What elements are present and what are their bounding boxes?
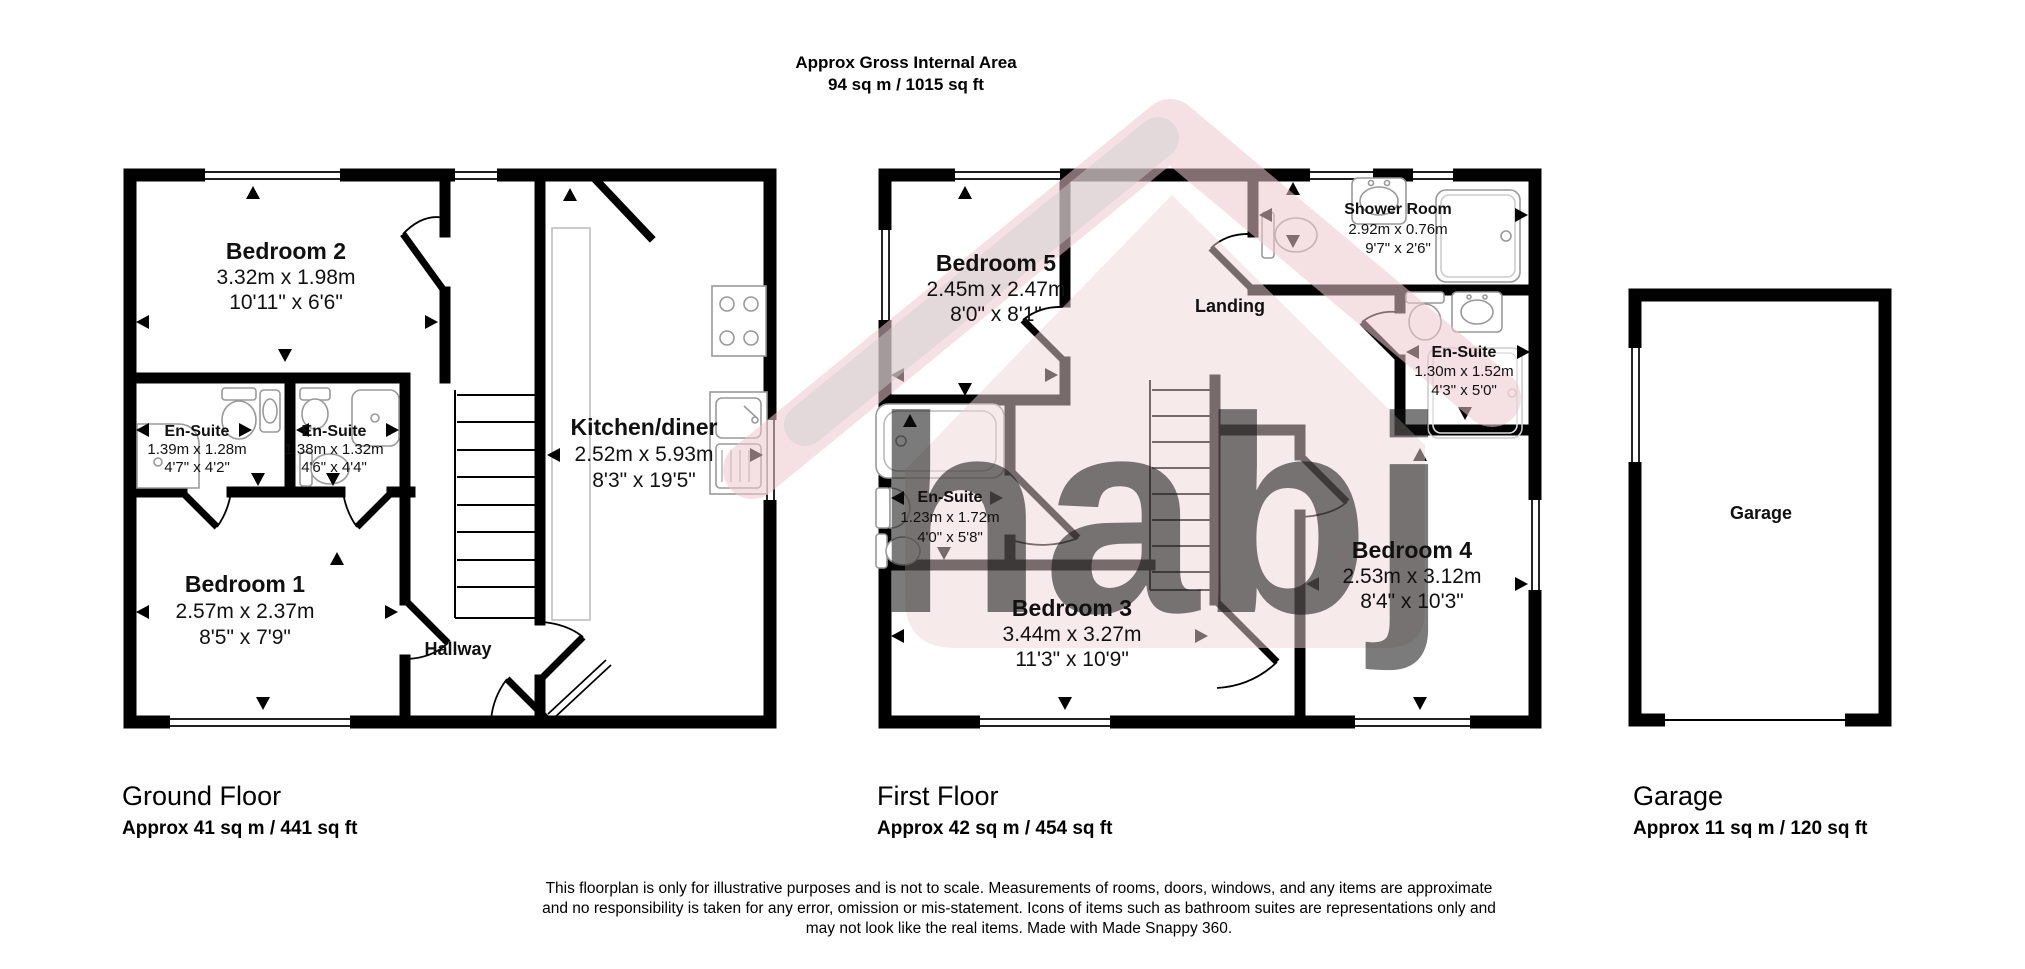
bedroom5-metric: 2.45m x 2.47m	[927, 278, 1066, 301]
garage-room-label: Garage	[1730, 503, 1792, 523]
ensuite-gf1-metric: 1.39m x 1.28m	[147, 441, 246, 458]
first-floor-title-block: First Floor Approx 42 sq m / 454 sq ft	[877, 781, 1112, 840]
ensuite-gf2-imperial: 4'6" x 4'4"	[301, 459, 367, 476]
ensuite-ff-mid-metric: 1.23m x 1.72m	[900, 509, 999, 526]
first-floor-title: First Floor	[877, 781, 1112, 811]
ground-floor-title: Ground Floor	[122, 781, 357, 811]
shower-room-metric: 2.92m x 0.76m	[1348, 221, 1447, 238]
bedroom4-metric: 2.53m x 3.12m	[1343, 565, 1482, 588]
ensuite-ff-mid-imperial: 4'0" x 5'8"	[917, 529, 983, 546]
entry-diagonal-wall	[597, 181, 650, 237]
shower-room-imperial: 9'7" x 2'6"	[1365, 240, 1431, 257]
garage-door	[1665, 714, 1845, 727]
disclaimer: This floorplan is only for illustrative …	[542, 879, 1496, 939]
disclaimer-line: may not look like the real items. Made w…	[542, 919, 1496, 939]
shower-room-label: Shower Room	[1344, 201, 1452, 218]
first-floor-area: Approx 42 sq m / 454 sq ft	[877, 818, 1112, 840]
garage-area: Approx 11 sq m / 120 sq ft	[1633, 818, 1867, 840]
stairs	[455, 390, 540, 618]
sink-icon	[260, 390, 280, 432]
ensuite-gf1-label: En-Suite	[165, 423, 230, 440]
ensuite-ff-right-label: En-Suite	[1432, 344, 1497, 361]
ensuite-gf2-metric: 1.38m x 1.32m	[284, 441, 383, 458]
bedroom3-imperial: 11'3" x 10'9"	[1015, 648, 1129, 671]
landing-label: Landing	[1195, 296, 1265, 316]
bedroom1-label: Bedroom 1	[185, 571, 305, 597]
bedroom3-label: Bedroom 3	[1012, 595, 1132, 621]
ground-floor-area: Approx 41 sq m / 441 sq ft	[122, 818, 357, 840]
bedroom2-metric: 3.32m x 1.98m	[217, 266, 356, 289]
disclaimer-line: and no responsibility is taken for any e…	[542, 899, 1496, 919]
hob-icon	[712, 286, 766, 356]
bedroom4-imperial: 8'4" x 10'3"	[1360, 590, 1464, 613]
floorplan-page: Approx Gross Internal Area 94 sq m / 101…	[0, 0, 2025, 969]
bedroom2-imperial: 10'11" x 6'6"	[229, 291, 343, 314]
disclaimer-line: This floorplan is only for illustrative …	[542, 879, 1496, 899]
garage-title: Garage	[1633, 781, 1867, 811]
bedroom4-label: Bedroom 4	[1352, 537, 1472, 563]
sink-icon	[1452, 292, 1502, 332]
kitchen-metric: 2.52m x 5.93m	[575, 443, 714, 466]
hallway-label: Hallway	[424, 639, 491, 659]
ensuite-ff-mid-label: En-Suite	[918, 489, 983, 506]
ensuite-gf2-label: En-Suite	[302, 423, 367, 440]
ensuite-gf1-imperial: 4'7" x 4'2"	[164, 459, 230, 476]
ensuite-ff-right-metric: 1.30m x 1.52m	[1414, 363, 1513, 380]
ensuite-ff-right-imperial: 4'3" x 5'0"	[1431, 382, 1497, 399]
kitchen-label: Kitchen/diner	[571, 414, 718, 440]
bedroom1-metric: 2.57m x 2.37m	[176, 600, 315, 623]
bedroom1-imperial: 8'5" x 7'9"	[199, 626, 291, 649]
bedroom2-label: Bedroom 2	[226, 238, 346, 264]
kitchen-imperial: 8'3" x 19'5"	[592, 469, 696, 492]
garage-title-block: Garage Approx 11 sq m / 120 sq ft	[1633, 781, 1867, 840]
ground-floor-title-block: Ground Floor Approx 41 sq m / 441 sq ft	[122, 781, 357, 840]
bedroom5-imperial: 8'0" x 8'1"	[950, 303, 1042, 326]
windows	[1629, 348, 1642, 462]
bedroom3-metric: 3.44m x 3.27m	[1003, 623, 1142, 646]
bedroom5-label: Bedroom 5	[936, 250, 1056, 276]
